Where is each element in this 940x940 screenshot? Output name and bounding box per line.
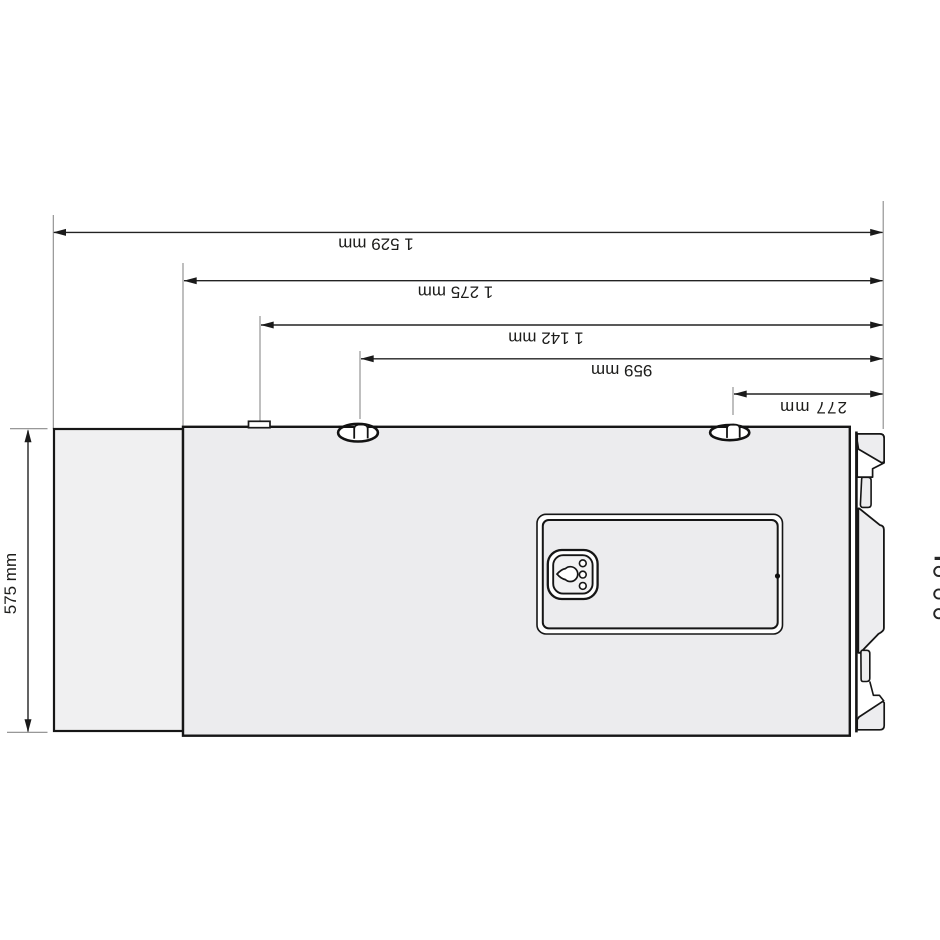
svg-text:1 275 mm: 1 275 mm	[418, 283, 494, 302]
svg-text:575 mm: 575 mm	[1, 553, 20, 614]
svg-text:277 mm: 277 mm	[779, 398, 847, 417]
svg-text:1 142 mm: 1 142 mm	[508, 329, 584, 348]
svg-text:1 529 mm: 1 529 mm	[338, 235, 414, 254]
svg-text:959 mm: 959 mm	[591, 361, 652, 380]
